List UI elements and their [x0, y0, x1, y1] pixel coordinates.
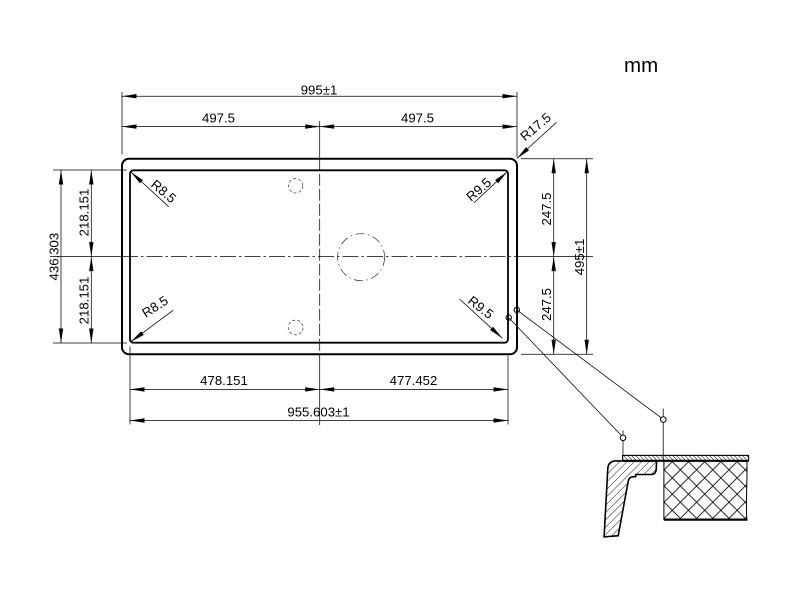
svg-text:R17.5: R17.5	[517, 110, 554, 144]
svg-text:R9.5: R9.5	[463, 175, 494, 205]
svg-text:995±1: 995±1	[301, 82, 338, 97]
svg-text:497.5: 497.5	[202, 110, 235, 125]
svg-text:436.303: 436.303	[47, 233, 62, 281]
svg-text:R8.5: R8.5	[139, 293, 171, 321]
svg-text:218.151: 218.151	[77, 277, 92, 325]
svg-text:495±1: 495±1	[572, 239, 587, 276]
svg-text:218.151: 218.151	[77, 189, 92, 237]
svg-text:R9.5: R9.5	[465, 293, 496, 322]
svg-text:477.452: 477.452	[390, 373, 438, 388]
svg-text:497.5: 497.5	[401, 110, 434, 125]
svg-text:955.603±1: 955.603±1	[287, 404, 349, 419]
svg-text:478.151: 478.151	[200, 373, 248, 388]
svg-text:247.5: 247.5	[539, 192, 554, 225]
svg-text:mm: mm	[624, 54, 658, 77]
svg-text:247.5: 247.5	[539, 288, 554, 321]
